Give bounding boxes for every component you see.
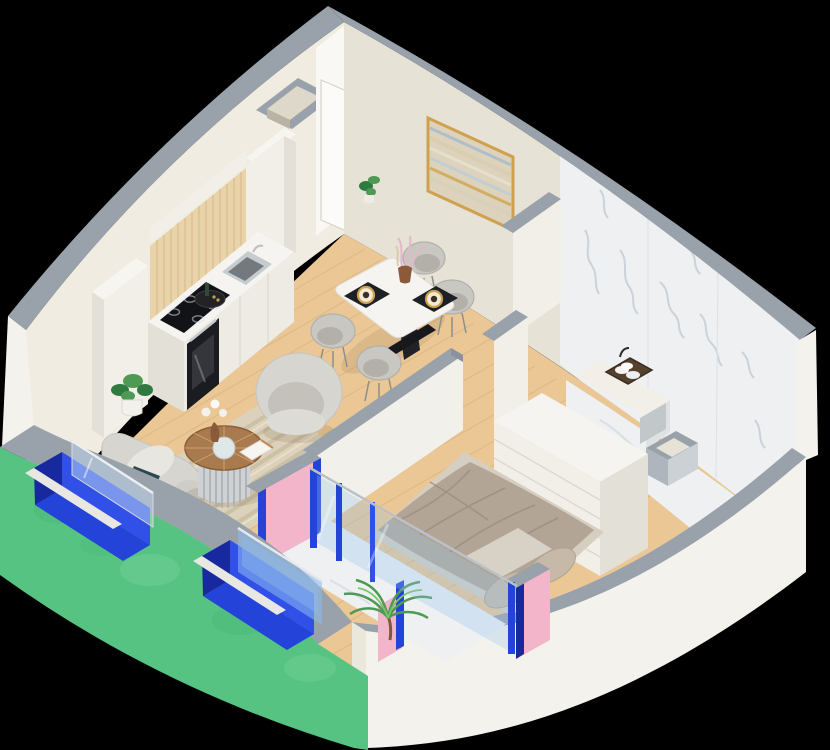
blue-mullion bbox=[336, 483, 342, 561]
blue-mullion bbox=[508, 582, 515, 654]
render-canvas bbox=[0, 0, 830, 750]
towel-roll bbox=[621, 363, 633, 370]
serving-tray bbox=[195, 291, 225, 308]
plant-pot bbox=[364, 195, 374, 204]
blue-mullion bbox=[516, 583, 524, 659]
tray-item bbox=[212, 295, 215, 298]
tall-cabinet-side bbox=[92, 292, 104, 438]
chair-seat bbox=[414, 254, 440, 272]
pantry-side bbox=[284, 136, 296, 258]
blue-mullion bbox=[370, 502, 375, 582]
chair-seat bbox=[317, 327, 343, 345]
plant-pot bbox=[122, 400, 142, 416]
white-flower bbox=[202, 408, 211, 417]
leaf bbox=[366, 188, 376, 196]
vase bbox=[398, 266, 412, 284]
blue-mullion bbox=[310, 468, 317, 548]
plate-food bbox=[363, 292, 369, 298]
wall-texture bbox=[284, 654, 336, 682]
leaf bbox=[137, 384, 153, 396]
leaf bbox=[368, 176, 380, 184]
wall-texture bbox=[120, 554, 180, 586]
white-flower bbox=[219, 409, 227, 417]
armchair-cushion bbox=[267, 409, 325, 435]
plate-food bbox=[431, 296, 437, 302]
tray-item bbox=[216, 298, 219, 301]
bottle bbox=[205, 283, 209, 296]
white-flower bbox=[211, 400, 220, 409]
apartment-isometric-render bbox=[0, 0, 830, 750]
chair-seat bbox=[363, 359, 389, 377]
towel-roll bbox=[626, 371, 640, 379]
armchair bbox=[256, 353, 342, 443]
east-corner-column bbox=[796, 330, 818, 460]
